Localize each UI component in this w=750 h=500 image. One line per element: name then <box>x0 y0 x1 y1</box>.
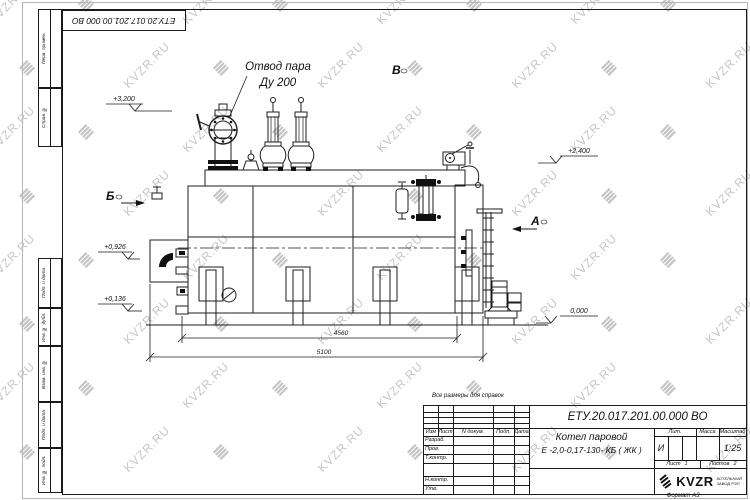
callout-steam-outlet-line2: Ду 200 <box>258 77 297 89</box>
tb-lit-label: Лит. <box>654 428 696 436</box>
elevation-2400-label: +2,400 <box>568 148 590 155</box>
tb-col-podp: Подп. <box>493 428 514 436</box>
tb-product-type: Е -2,0-0,17-130- КБ ( ЖК ) <box>529 444 654 456</box>
tb-mass-label: Масса <box>696 428 719 436</box>
tb-col-ndokum: N докум. <box>453 428 493 436</box>
section-v-label: В <box>392 63 401 77</box>
reference-note: Все размеры для справок <box>432 393 505 399</box>
boiler-linework <box>146 98 548 326</box>
kvzr-logo-icon <box>658 474 673 489</box>
tb-sheets-cell: Листов 2 <box>700 460 746 468</box>
tb-row-tkontr: Т.контр. <box>425 455 453 463</box>
kvzr-logo-text: KVZR <box>676 474 713 489</box>
tb-row-nkontr: Н.контр. <box>425 477 453 485</box>
tb-doc-number: ЕТУ.20.017.201.00.000 ВО <box>529 406 746 428</box>
tb-col-izm: Изм <box>424 428 438 436</box>
elevation-0000-label: 0,000 <box>570 308 588 315</box>
section-marks: Б В А <box>106 63 547 232</box>
tb-row-prov: Пров. <box>425 446 453 454</box>
dimension-4560-label: 4560 <box>334 330 349 337</box>
elevation-marks <box>98 104 598 323</box>
company-name-line2: ЗАВОД РЭП <box>717 481 742 486</box>
title-block: Изм Лист N докум. Подп. Дата Разраб. Про… <box>423 405 747 495</box>
tb-row-utv: Утв. <box>425 486 453 494</box>
tb-sheet-cell: Лист 1 <box>654 460 700 468</box>
tb-company-cell: KVZR КОТЕЛЬНЫЙ ЗАВОД РЭП <box>654 468 746 494</box>
elevation-0136-label: +0,136 <box>104 296 126 303</box>
tb-col-data: Дата <box>514 428 529 436</box>
tb-mass-value <box>696 436 719 460</box>
tb-sheet-label: Лист <box>666 461 680 467</box>
tb-row-razrab: Разраб. <box>425 437 453 445</box>
tb-col-list: Лист <box>438 428 453 436</box>
tb-scale-label: Масштаб <box>719 428 746 436</box>
section-a-label: А <box>530 214 540 228</box>
tb-sheet-value: 1 <box>685 461 688 467</box>
tb-product-name: Котел паровой <box>529 430 654 444</box>
tb-lit-value: И <box>654 436 668 460</box>
drawing-sheet: KVZR.RU≣KVZR.RU≣KVZR.RU≣KVZR.RU≣≣KVZR.RU… <box>0 0 750 500</box>
tb-sheets-label: Листов <box>709 461 729 467</box>
elevation-3200-label: +3,200 <box>113 96 135 103</box>
company-name: КОТЕЛЬНЫЙ ЗАВОД РЭП <box>717 476 742 486</box>
tb-scale-value: 1:25 <box>719 436 746 460</box>
callout-leader-line <box>229 76 247 118</box>
format-label: Формат А3 <box>633 493 733 499</box>
section-b-label: Б <box>106 189 115 203</box>
dimension-5100-label: 5100 <box>317 349 332 356</box>
callout-steam-outlet-line1: Отвод пара <box>245 61 311 73</box>
tb-sheets-value: 2 <box>733 461 736 467</box>
elevation-0926-label: +0,926 <box>104 244 126 251</box>
